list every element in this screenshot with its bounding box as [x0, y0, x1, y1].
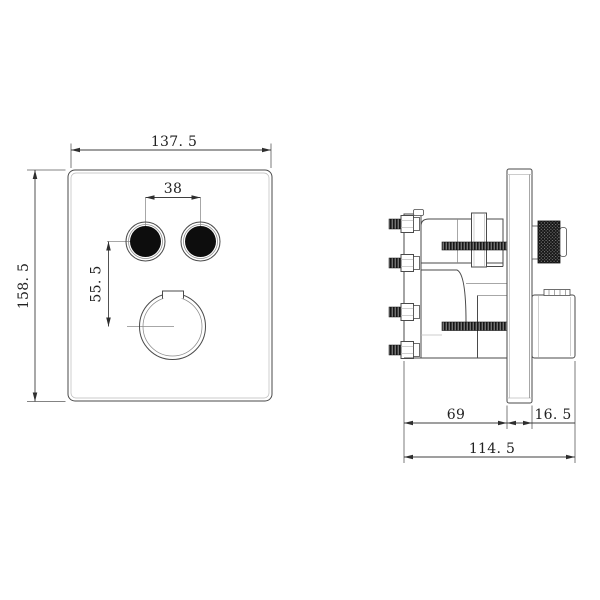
cartridge-housing — [421, 219, 503, 263]
stem-end-cap — [560, 228, 567, 257]
arrowhead — [404, 455, 413, 460]
arrowhead — [262, 148, 271, 153]
knob-top-ridge — [544, 290, 570, 296]
upper-threaded-spindle — [442, 242, 507, 250]
dim-front-height: 158. 5 — [16, 170, 66, 402]
dim-front-width-label: 137. 5 — [151, 134, 197, 150]
dim-front-height-label: 158. 5 — [16, 263, 32, 309]
arrowhead — [566, 455, 575, 460]
hex-nut — [401, 216, 414, 233]
fitting-washer — [414, 344, 420, 357]
dim-button-to-knob-label: 55. 5 — [89, 265, 105, 302]
arrowhead — [33, 170, 38, 179]
dim-plate-thickness-label: 16. 5 — [534, 407, 571, 423]
button-right-face — [185, 226, 216, 257]
knurled-knob — [538, 221, 560, 263]
pipe-fitting-4 — [389, 342, 420, 359]
rotary-knob-side — [532, 290, 575, 359]
threaded-nipple — [389, 345, 401, 355]
valve-body-manifold — [404, 214, 421, 358]
hex-nut — [401, 342, 414, 359]
pipe-fitting-3 — [389, 304, 420, 321]
front-view: 137. 5 158. 5 38 55. 5 — [16, 134, 272, 402]
fitting-washer — [414, 306, 420, 319]
faceplate-edge — [507, 169, 532, 403]
pipe-fitting-1 — [389, 216, 420, 233]
knob-index-tab — [163, 291, 184, 299]
faceplate-side — [507, 169, 532, 403]
technical-drawing-canvas: 137. 5 158. 5 38 55. 5 — [0, 0, 600, 600]
arrowhead — [523, 421, 532, 426]
hex-nut — [401, 304, 414, 321]
arrowhead — [507, 421, 516, 426]
threaded-nipple — [389, 219, 401, 229]
dim-button-spacing-label: 38 — [164, 181, 182, 197]
dim-body-depth-label: 69 — [447, 407, 465, 423]
fitting-washer — [414, 218, 420, 231]
arrowhead — [498, 421, 507, 426]
thermostat-stem — [532, 221, 567, 263]
side-view: 69 16. 5 114. 5 — [389, 169, 575, 463]
arrowhead — [33, 393, 38, 402]
body-contour-curve — [421, 263, 466, 322]
arrowhead — [404, 421, 413, 426]
threaded-nipple — [389, 307, 401, 317]
valve-dimension-drawing: 137. 5 158. 5 38 55. 5 — [0, 0, 600, 600]
fitting-washer — [414, 257, 420, 270]
dim-total-depth: 114. 5 — [404, 441, 575, 459]
arrowhead — [71, 148, 80, 153]
dim-total-depth-label: 114. 5 — [469, 441, 515, 457]
dim-front-width: 137. 5 — [71, 134, 271, 168]
body-top-lug — [414, 210, 424, 216]
push-button-right — [181, 222, 220, 261]
stem-neck — [532, 226, 538, 259]
pipe-fitting-2 — [389, 255, 420, 272]
threaded-nipple — [389, 258, 401, 268]
hex-nut — [401, 255, 414, 272]
lower-threaded-spindle — [442, 322, 507, 331]
button-left-face — [130, 226, 161, 257]
push-button-left — [126, 222, 165, 261]
